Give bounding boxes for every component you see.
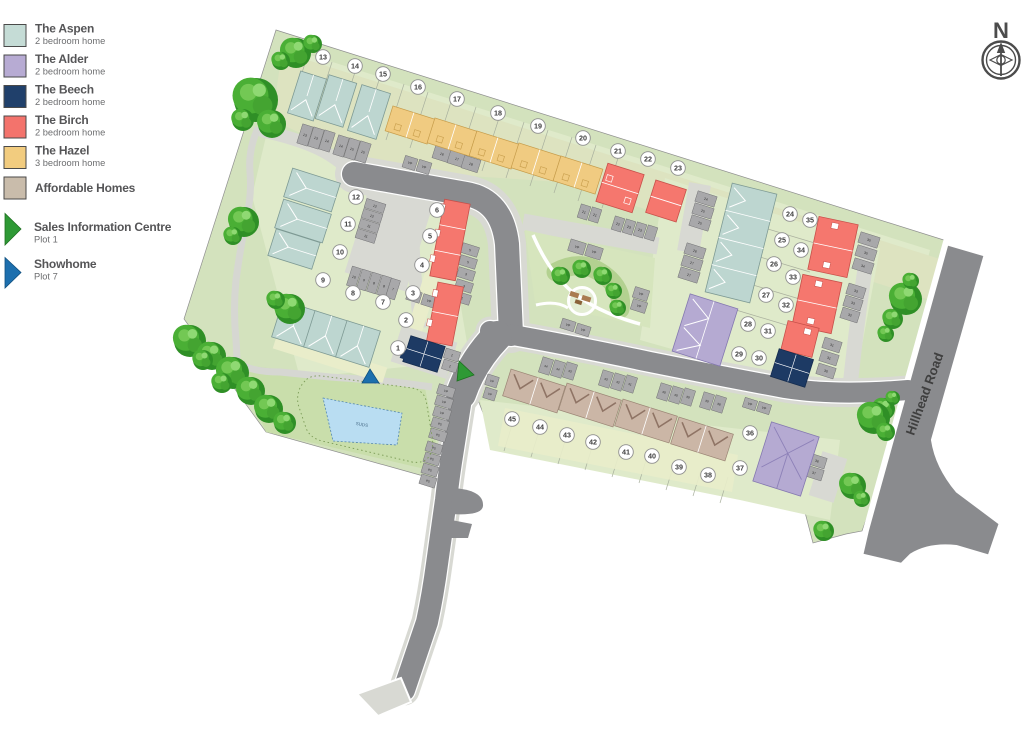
svg-text:2 bedroom home: 2 bedroom home: [35, 36, 105, 46]
svg-text:14: 14: [351, 62, 359, 71]
svg-text:30: 30: [755, 354, 763, 363]
svg-text:Showhome: Showhome: [34, 257, 97, 271]
svg-text:The Alder: The Alder: [35, 52, 89, 66]
svg-text:35: 35: [806, 216, 814, 225]
svg-text:11: 11: [344, 220, 352, 229]
svg-text:22: 22: [644, 155, 652, 164]
svg-text:4: 4: [420, 261, 424, 270]
svg-text:19: 19: [534, 122, 542, 131]
svg-text:27: 27: [762, 291, 770, 300]
svg-text:10: 10: [336, 248, 344, 257]
svg-text:3: 3: [411, 289, 415, 298]
svg-text:38: 38: [704, 471, 712, 480]
svg-text:44: 44: [536, 423, 544, 432]
svg-text:15: 15: [379, 70, 387, 79]
svg-text:17: 17: [453, 95, 461, 104]
svg-text:33: 33: [789, 273, 797, 282]
svg-text:25: 25: [778, 236, 786, 245]
svg-text:16: 16: [414, 83, 422, 92]
svg-text:41: 41: [622, 448, 630, 457]
svg-text:34: 34: [797, 246, 805, 255]
svg-text:The Hazel: The Hazel: [35, 144, 89, 158]
svg-text:20: 20: [579, 134, 587, 143]
svg-text:9: 9: [321, 276, 325, 285]
svg-text:3 bedroom home: 3 bedroom home: [35, 158, 105, 168]
svg-text:5: 5: [428, 232, 432, 241]
svg-text:29: 29: [735, 350, 743, 359]
svg-text:26: 26: [770, 260, 778, 269]
svg-text:The Beech: The Beech: [35, 83, 94, 97]
svg-text:43: 43: [563, 431, 571, 440]
svg-text:6: 6: [435, 206, 439, 215]
svg-text:1: 1: [396, 344, 400, 353]
svg-text:42: 42: [589, 438, 597, 447]
svg-text:36: 36: [746, 429, 754, 438]
svg-text:18: 18: [494, 109, 502, 118]
svg-text:Plot 7: Plot 7: [34, 272, 58, 282]
svg-text:12: 12: [352, 193, 360, 202]
svg-text:24: 24: [786, 210, 794, 219]
svg-text:The Aspen: The Aspen: [35, 22, 94, 36]
svg-text:Affordable Homes: Affordable Homes: [35, 181, 136, 195]
svg-text:13: 13: [319, 53, 327, 62]
svg-text:N: N: [993, 18, 1009, 43]
svg-text:31: 31: [764, 327, 772, 336]
svg-text:2: 2: [404, 316, 408, 325]
svg-text:Plot 1: Plot 1: [34, 235, 58, 245]
svg-text:28: 28: [744, 320, 752, 329]
svg-text:2 bedroom home: 2 bedroom home: [35, 97, 105, 107]
svg-text:40: 40: [648, 452, 656, 461]
svg-text:8: 8: [351, 289, 355, 298]
svg-text:21: 21: [614, 147, 622, 156]
svg-text:45: 45: [508, 415, 516, 424]
svg-text:23: 23: [674, 164, 682, 173]
svg-text:2 bedroom home: 2 bedroom home: [35, 66, 105, 76]
svg-text:39: 39: [675, 463, 683, 472]
svg-text:Sales Information Centre: Sales Information Centre: [34, 220, 172, 234]
svg-text:The Birch: The Birch: [35, 113, 89, 127]
svg-text:2 bedroom home: 2 bedroom home: [35, 127, 105, 137]
svg-text:32: 32: [782, 301, 790, 310]
svg-text:7: 7: [381, 298, 385, 307]
svg-text:37: 37: [736, 464, 744, 473]
